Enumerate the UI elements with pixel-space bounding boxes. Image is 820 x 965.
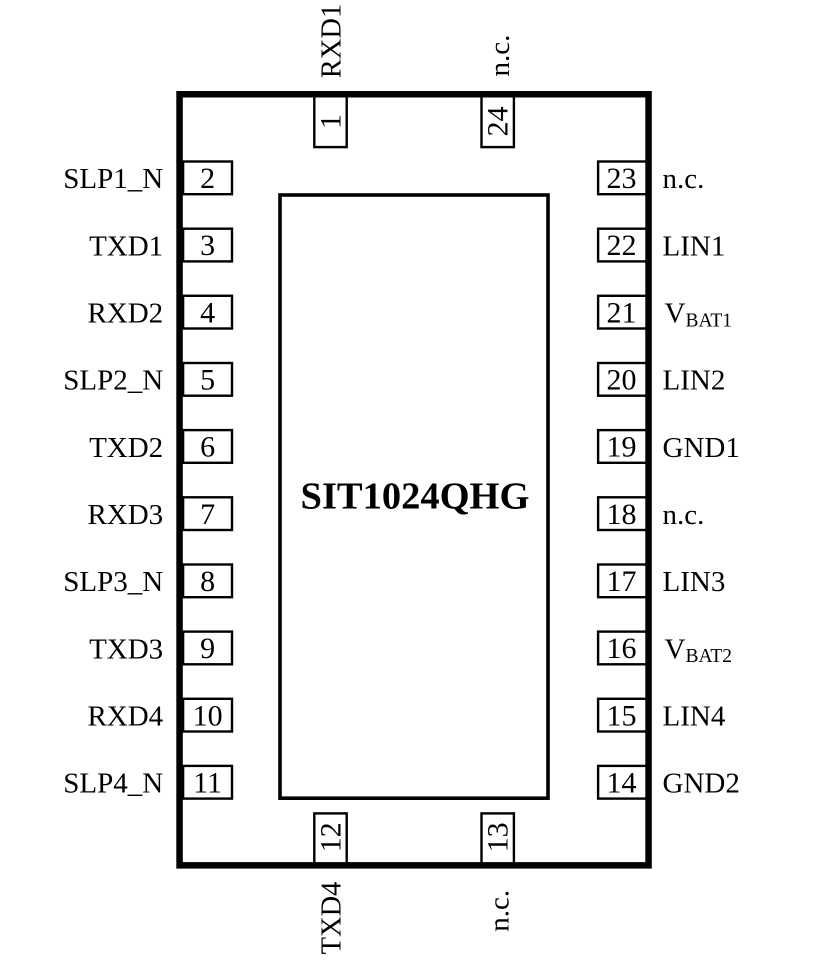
svg-text:9: 9 [200,632,215,665]
svg-text:TXD2: TXD2 [89,432,163,464]
svg-text:1: 1 [314,114,347,129]
svg-text:18: 18 [607,498,637,531]
svg-text:15: 15 [607,699,637,732]
svg-text:7: 7 [200,498,215,531]
svg-text:23: 23 [607,162,637,195]
svg-text:19: 19 [607,431,637,464]
svg-text:GND1: GND1 [663,432,740,464]
svg-text:8: 8 [200,565,215,598]
svg-text:TXD4: TXD4 [316,882,347,955]
svg-text:RXD3: RXD3 [87,499,163,531]
svg-text:LIN2: LIN2 [663,365,726,397]
svg-text:LIN1: LIN1 [663,230,726,262]
svg-text:RXD1: RXD1 [316,4,347,78]
svg-text:5: 5 [200,364,215,397]
svg-text:24: 24 [482,107,515,137]
svg-text:SLP4_N: SLP4_N [63,768,163,800]
svg-text:11: 11 [193,766,222,799]
svg-text:6: 6 [200,431,215,464]
svg-text:16: 16 [607,632,637,665]
svg-text:n.c.: n.c. [484,890,516,932]
svg-text:SIT1024QHG: SIT1024QHG [301,476,530,518]
svg-text:3: 3 [200,229,215,262]
svg-text:RXD2: RXD2 [87,298,163,330]
svg-text:22: 22 [607,229,637,262]
svg-text:12: 12 [314,822,347,852]
svg-text:SLP3_N: SLP3_N [63,566,163,598]
svg-text:n.c.: n.c. [663,163,705,195]
svg-text:21: 21 [607,296,637,329]
svg-text:4: 4 [200,296,215,329]
svg-text:LIN4: LIN4 [663,701,726,733]
svg-text:20: 20 [607,364,637,397]
svg-text:SLP1_N: SLP1_N [63,163,163,195]
svg-text:2: 2 [200,162,215,195]
svg-text:13: 13 [482,822,515,852]
svg-text:14: 14 [607,766,637,799]
svg-text:n.c.: n.c. [484,35,516,77]
svg-text:17: 17 [607,565,637,598]
svg-text:TXD3: TXD3 [89,633,163,665]
svg-text:LIN3: LIN3 [663,566,726,598]
svg-text:TXD1: TXD1 [89,230,163,262]
svg-text:RXD4: RXD4 [87,701,163,733]
svg-text:SLP2_N: SLP2_N [63,365,163,397]
svg-text:GND2: GND2 [663,768,740,800]
svg-text:n.c.: n.c. [663,499,705,531]
svg-text:10: 10 [193,699,223,732]
